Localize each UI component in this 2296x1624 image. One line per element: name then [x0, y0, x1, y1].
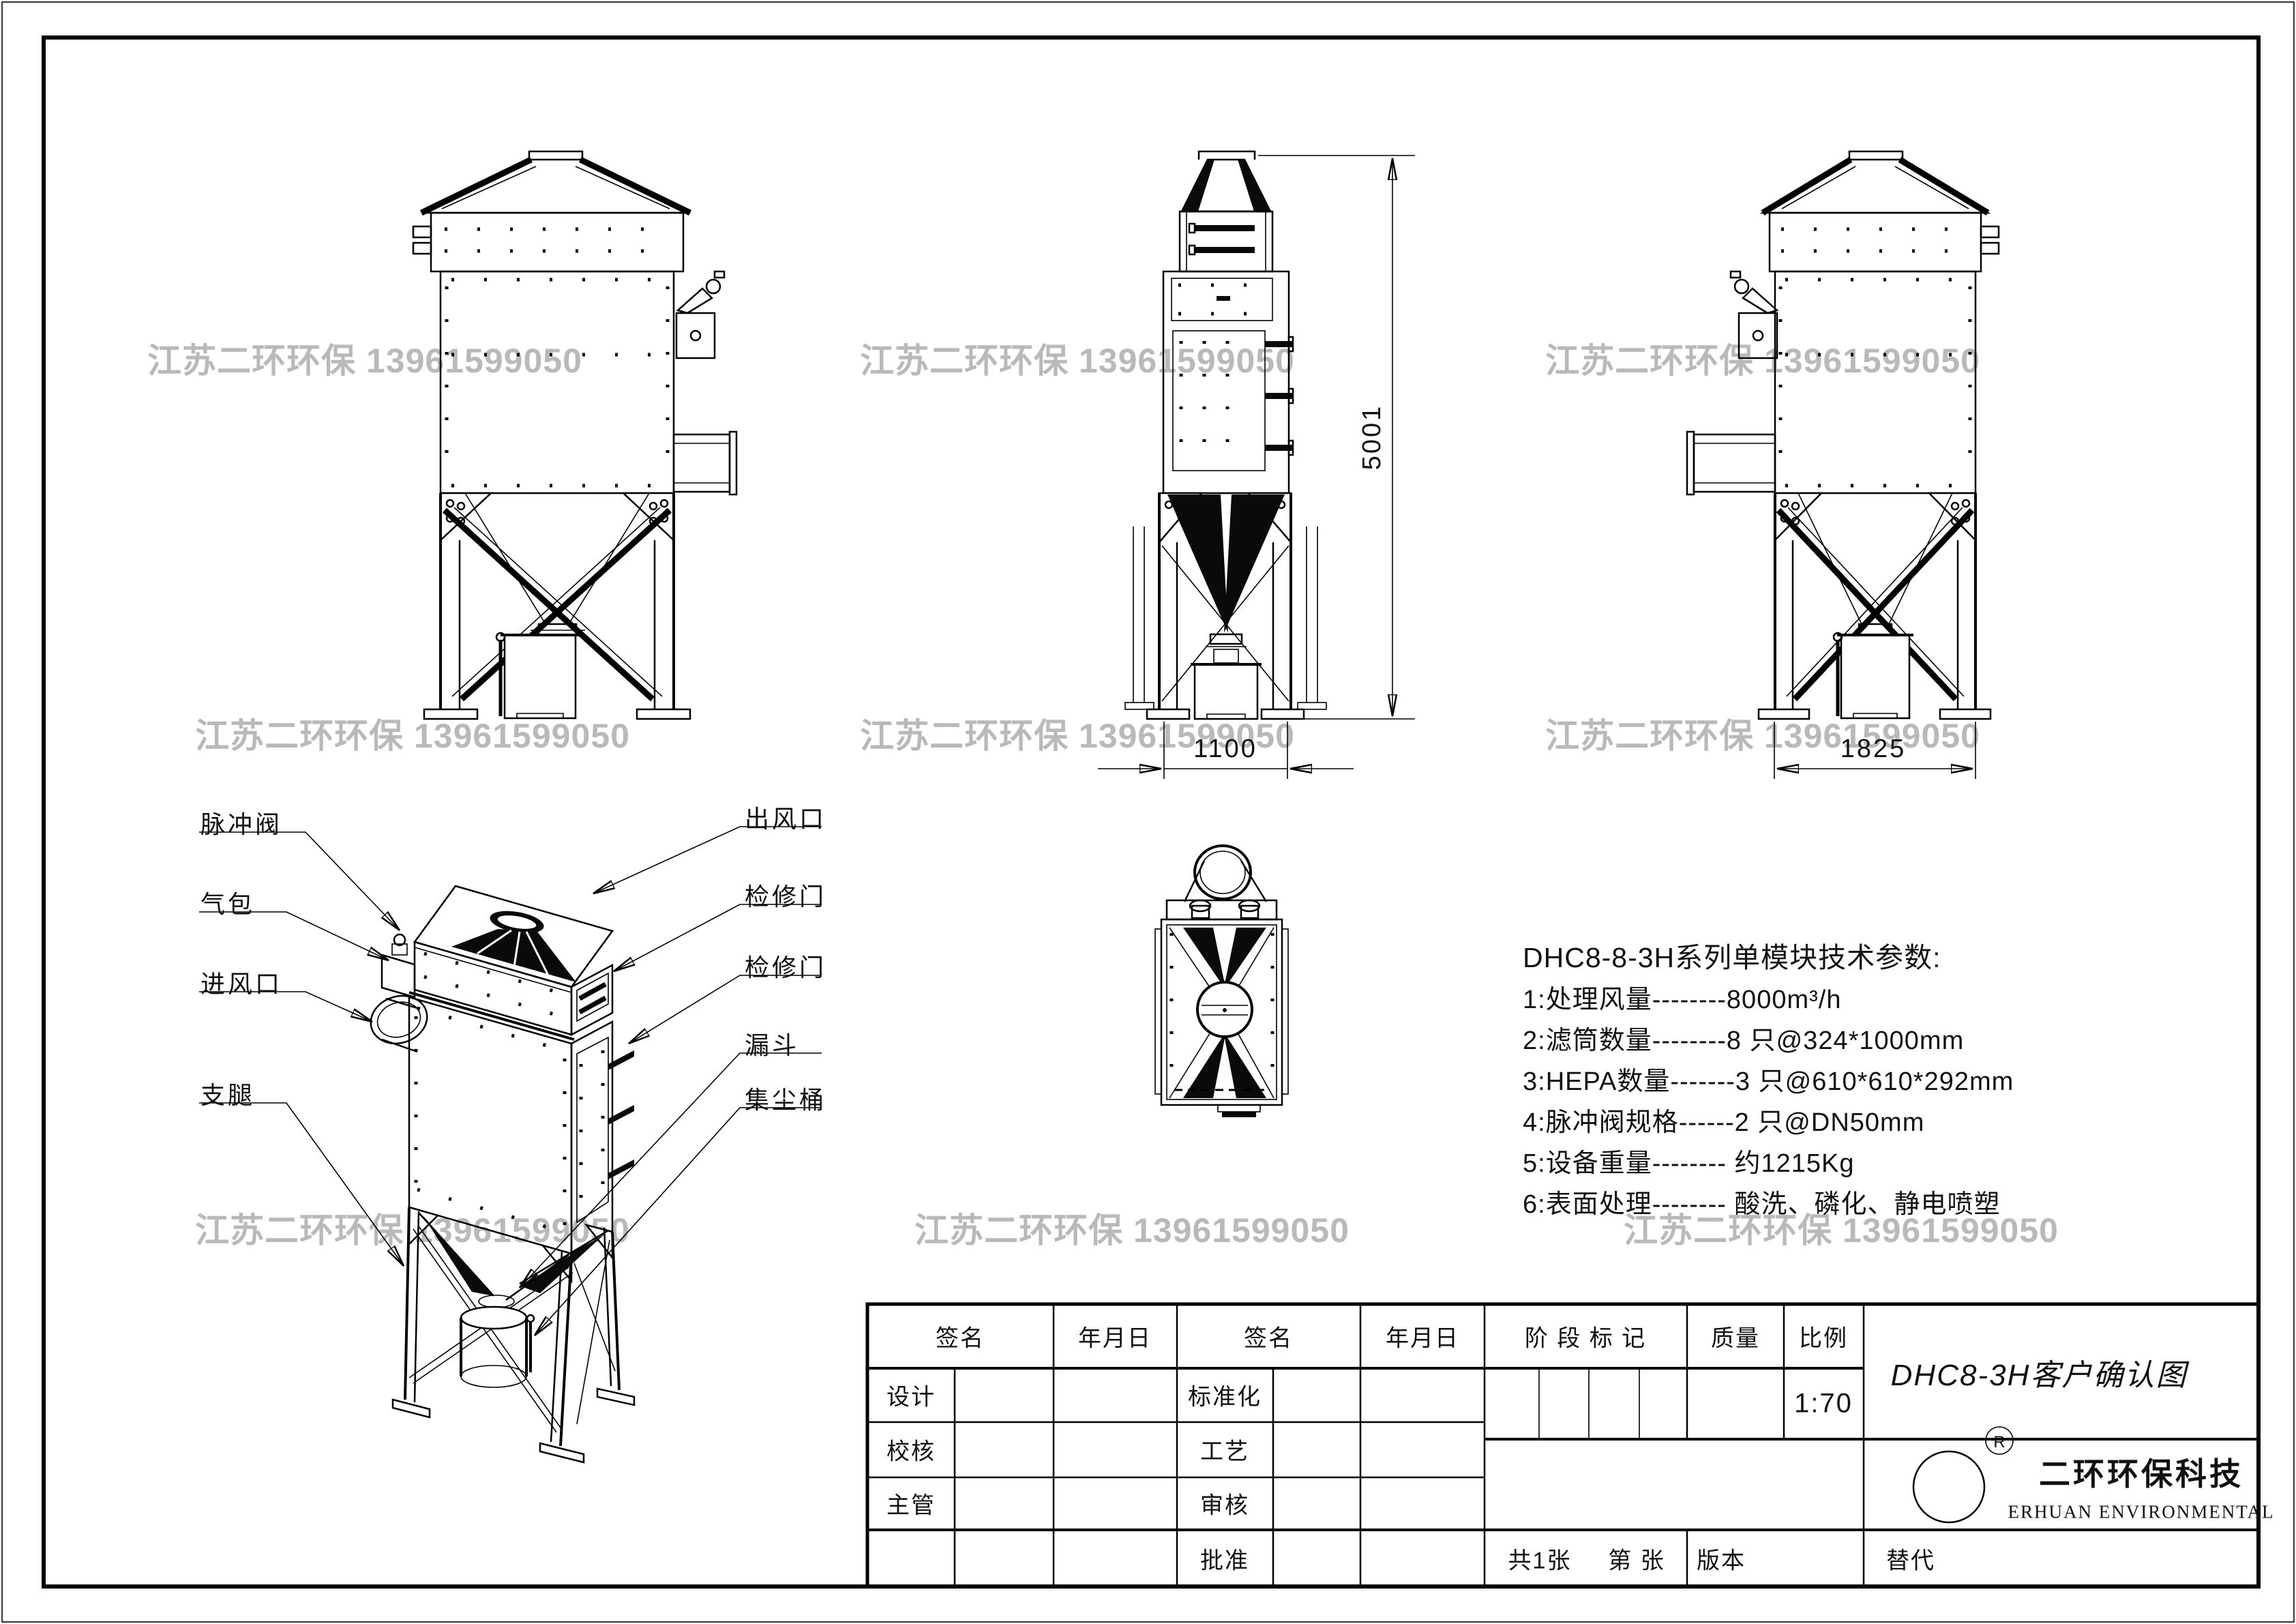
- isometric-view: [365, 886, 634, 1462]
- sheet-total: 共1张: [1508, 1542, 1572, 1576]
- dim-depth-value: 1100: [1193, 735, 1257, 763]
- header-quality: 质量: [1711, 1320, 1760, 1353]
- role-design: 设计: [886, 1378, 936, 1412]
- replace-label: 替代: [1886, 1542, 1935, 1576]
- callout-access-door-1: 检修门: [745, 877, 826, 913]
- callout-dust-barrel: 集尘桶: [745, 1080, 826, 1116]
- role-manager: 主管: [886, 1487, 936, 1520]
- side-view: [1125, 151, 1326, 719]
- header-stage-mark: 阶 段 标 记: [1525, 1320, 1646, 1353]
- role-process: 工艺: [1200, 1433, 1249, 1466]
- tech-param-item: 5:设备重量-------- 约1215Kg: [1523, 1142, 1855, 1179]
- company-logo: JNEH R: [1913, 1427, 2013, 1522]
- tech-param-item: 6:表面处理-------- 酸洗、磷化、静电喷塑: [1523, 1183, 2001, 1220]
- tech-param-item: 4:脉冲阀规格------2 只@DN50mm: [1523, 1101, 1924, 1138]
- callout-hopper: 漏斗: [745, 1026, 799, 1061]
- company-name-en: ERHUAN ENVIRONMENTAL: [2008, 1502, 2274, 1523]
- tech-params-title: DHC8-8-3H系列单模块技术参数:: [1523, 934, 1941, 975]
- tech-param-item: 2:滤筒数量--------8 只@324*1000mm: [1523, 1019, 1964, 1057]
- plan-view: [1155, 846, 1288, 1117]
- role-approve: 批准: [1200, 1542, 1249, 1576]
- tech-param-item: 1:处理风量--------8000m³/h: [1523, 978, 1841, 1016]
- drawing-title: DHC8-3H客户确认图: [1891, 1350, 2188, 1394]
- header-date-2: 年月日: [1386, 1320, 1459, 1353]
- right-view: [1687, 151, 1999, 719]
- dim-height-value: 5001: [1358, 404, 1386, 471]
- callout-air-outlet: 出风口: [745, 799, 826, 835]
- scale-value: 1:70: [1794, 1389, 1853, 1419]
- header-date-1: 年月日: [1078, 1320, 1152, 1353]
- callout-leaders: [199, 827, 822, 1335]
- callout-air-inlet: 进风口: [200, 964, 282, 1000]
- company-name: 二环环保科技: [2039, 1449, 2243, 1494]
- tech-param-item: 3:HEPA数量-------3 只@610*610*292mm: [1523, 1060, 2014, 1097]
- role-audit: 审核: [1200, 1487, 1249, 1520]
- logo-text: JNEH: [1922, 1477, 1977, 1500]
- role-standard: 标准化: [1188, 1378, 1262, 1412]
- role-check: 校核: [886, 1433, 936, 1466]
- sheet-number: 第 张: [1608, 1542, 1665, 1576]
- version-label: 版本: [1697, 1542, 1746, 1576]
- dimension-height: 5001: [1258, 156, 1415, 719]
- callout-access-door-2: 检修门: [745, 948, 826, 984]
- dimension-depth: 1100: [1098, 722, 1354, 779]
- callout-support-leg: 支腿: [200, 1076, 255, 1111]
- front-view: [413, 151, 736, 719]
- header-sign-1: 签名: [936, 1320, 985, 1353]
- header-sign-2: 签名: [1244, 1320, 1293, 1353]
- header-scale: 比例: [1799, 1320, 1848, 1353]
- drawing-sheet: 江苏二环环保 13961599050 江苏二环环保 13961599050 江苏…: [0, 0, 2296, 1624]
- leader-support-leg: [199, 1103, 404, 1266]
- callout-air-bag: 气包: [200, 885, 255, 920]
- registered-mark-icon: R: [1993, 1433, 2005, 1451]
- dimension-width: 1825: [1774, 722, 1976, 779]
- callout-pulse-valve: 脉冲阀: [200, 805, 282, 840]
- dim-width-value: 1825: [1840, 735, 1907, 763]
